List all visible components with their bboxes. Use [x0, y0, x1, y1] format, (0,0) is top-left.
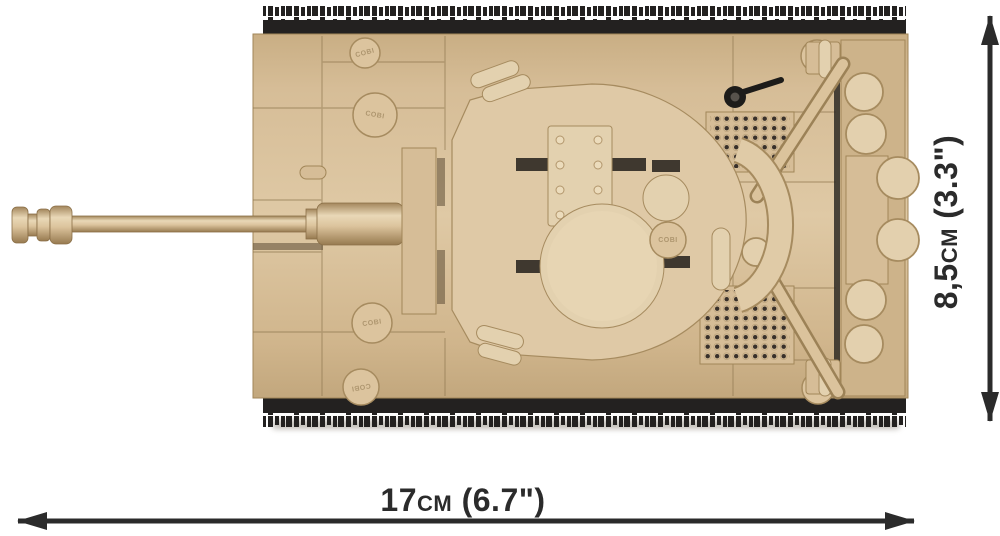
drum — [846, 114, 886, 154]
bottom-track-teeth — [263, 411, 906, 427]
tank-top-view-photo: COBI COBI COBI COBI COBI COBI — [0, 0, 1000, 536]
barrel-mount — [402, 148, 436, 314]
barrel-tube — [66, 216, 318, 232]
stud-logo: COBI — [658, 237, 678, 244]
stud: COBI — [352, 303, 392, 343]
top-track — [263, 6, 906, 36]
stud: COBI — [353, 93, 397, 137]
mantlet-bar — [712, 228, 730, 290]
height-label: 8,5cm (3.3") — [928, 135, 964, 310]
periscope-disc — [643, 175, 689, 221]
stud: COBI — [650, 222, 686, 258]
stud: COBI — [350, 38, 380, 68]
stud: COBI — [343, 369, 379, 405]
side-roller — [877, 219, 919, 261]
side-roller — [877, 157, 919, 199]
drum — [845, 73, 883, 111]
drum — [845, 325, 883, 363]
top-track-teeth — [263, 6, 906, 22]
rear-gap — [834, 44, 840, 394]
barrel-sleeve — [317, 203, 403, 245]
muzzle-brake — [12, 206, 72, 244]
hull-pin — [300, 166, 326, 179]
drum — [846, 280, 886, 320]
width-label: 17cm (6.7") — [380, 482, 545, 518]
product-dimension-image: COBI COBI COBI COBI COBI COBI — [0, 0, 1000, 536]
